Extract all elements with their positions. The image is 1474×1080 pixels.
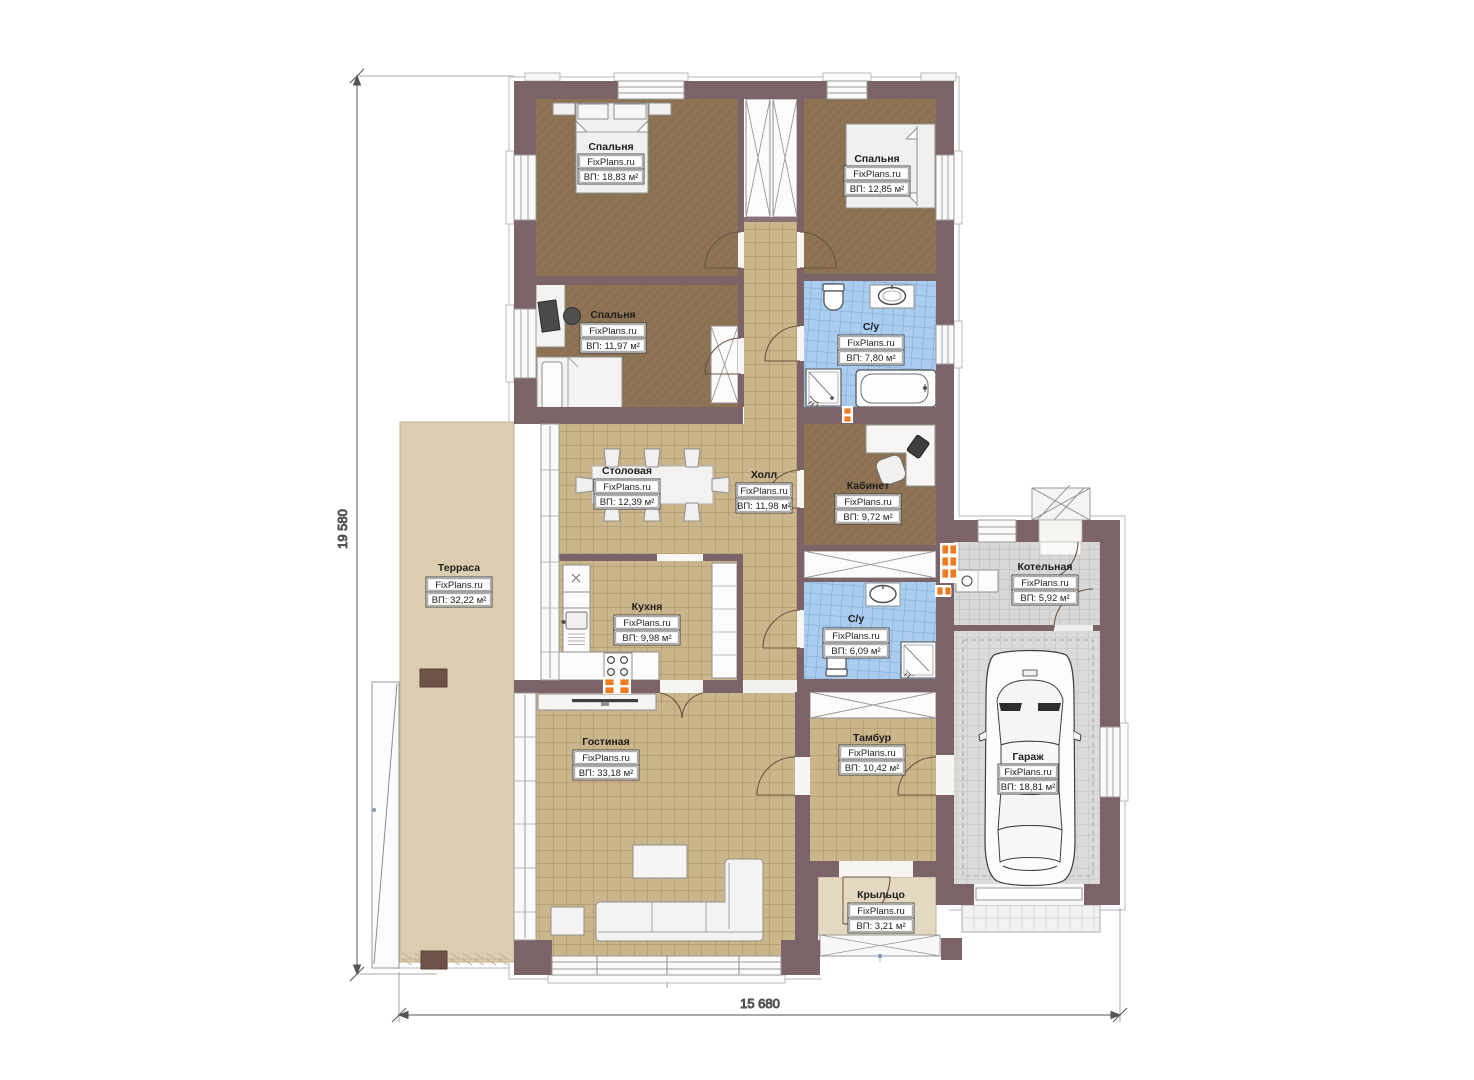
svg-text:ВП: 18,81 м²: ВП: 18,81 м²	[1001, 782, 1056, 793]
svg-text:ВП: 32,22 м²: ВП: 32,22 м²	[432, 595, 487, 606]
svg-text:FixPlans.ru: FixPlans.ru	[435, 580, 483, 591]
svg-text:Терраса: Терраса	[438, 562, 480, 574]
svg-text:FixPlans.ru: FixPlans.ru	[844, 497, 892, 508]
svg-text:ВП: 7,80 м²: ВП: 7,80 м²	[846, 353, 895, 364]
svg-text:FixPlans.ru: FixPlans.ru	[857, 906, 905, 917]
svg-text:19 580: 19 580	[335, 509, 350, 549]
svg-text:ВП: 6,09 м²: ВП: 6,09 м²	[831, 646, 880, 657]
svg-text:ВП: 3,21 м²: ВП: 3,21 м²	[856, 921, 905, 932]
svg-text:ВП: 18,83 м²: ВП: 18,83 м²	[584, 172, 639, 183]
svg-text:FixPlans.ru: FixPlans.ru	[740, 486, 788, 497]
svg-text:ВП: 11,97 м²: ВП: 11,97 м²	[586, 341, 640, 352]
svg-text:Кухня: Кухня	[632, 601, 663, 613]
svg-text:Гостиная: Гостиная	[582, 736, 629, 748]
svg-text:FixPlans.ru: FixPlans.ru	[1021, 578, 1069, 589]
svg-text:Столовая: Столовая	[602, 465, 652, 477]
svg-text:ВП: 11,98 м²: ВП: 11,98 м²	[737, 501, 791, 512]
svg-text:Крыльцо: Крыльцо	[857, 889, 905, 901]
svg-text:ВП: 9,72 м²: ВП: 9,72 м²	[843, 512, 892, 523]
svg-text:Тамбур: Тамбур	[853, 732, 891, 744]
svg-text:ВП: 12,85 м²: ВП: 12,85 м²	[850, 184, 905, 195]
svg-text:FixPlans.ru: FixPlans.ru	[832, 631, 880, 642]
svg-text:С/у: С/у	[848, 613, 865, 625]
svg-text:FixPlans.ru: FixPlans.ru	[589, 326, 637, 337]
svg-text:FixPlans.ru: FixPlans.ru	[587, 157, 635, 168]
svg-text:Кабинет: Кабинет	[847, 480, 890, 492]
svg-text:FixPlans.ru: FixPlans.ru	[1004, 767, 1052, 778]
svg-text:FixPlans.ru: FixPlans.ru	[847, 338, 895, 349]
svg-text:ВП: 5,92 м²: ВП: 5,92 м²	[1020, 593, 1069, 604]
svg-text:Спальня: Спальня	[588, 141, 633, 153]
svg-text:Спальня: Спальня	[854, 153, 899, 165]
svg-text:ВП: 33,18 м²: ВП: 33,18 м²	[579, 768, 634, 779]
svg-text:FixPlans.ru: FixPlans.ru	[623, 618, 671, 629]
svg-text:Холл: Холл	[751, 469, 777, 481]
svg-text:ВП: 12,39 м²: ВП: 12,39 м²	[600, 497, 655, 508]
svg-text:ВП: 10,42 м²: ВП: 10,42 м²	[845, 763, 900, 774]
svg-text:FixPlans.ru: FixPlans.ru	[582, 753, 630, 764]
svg-text:Гараж: Гараж	[1012, 751, 1044, 763]
svg-text:FixPlans.ru: FixPlans.ru	[603, 482, 651, 493]
svg-text:Котельная: Котельная	[1018, 561, 1073, 573]
svg-text:FixPlans.ru: FixPlans.ru	[853, 169, 901, 180]
svg-text:FixPlans.ru: FixPlans.ru	[848, 748, 896, 759]
svg-text:Спальня: Спальня	[590, 309, 635, 321]
svg-text:С/у: С/у	[863, 321, 880, 333]
svg-text:15 680: 15 680	[740, 996, 780, 1011]
svg-text:ВП: 9,98 м²: ВП: 9,98 м²	[622, 633, 671, 644]
